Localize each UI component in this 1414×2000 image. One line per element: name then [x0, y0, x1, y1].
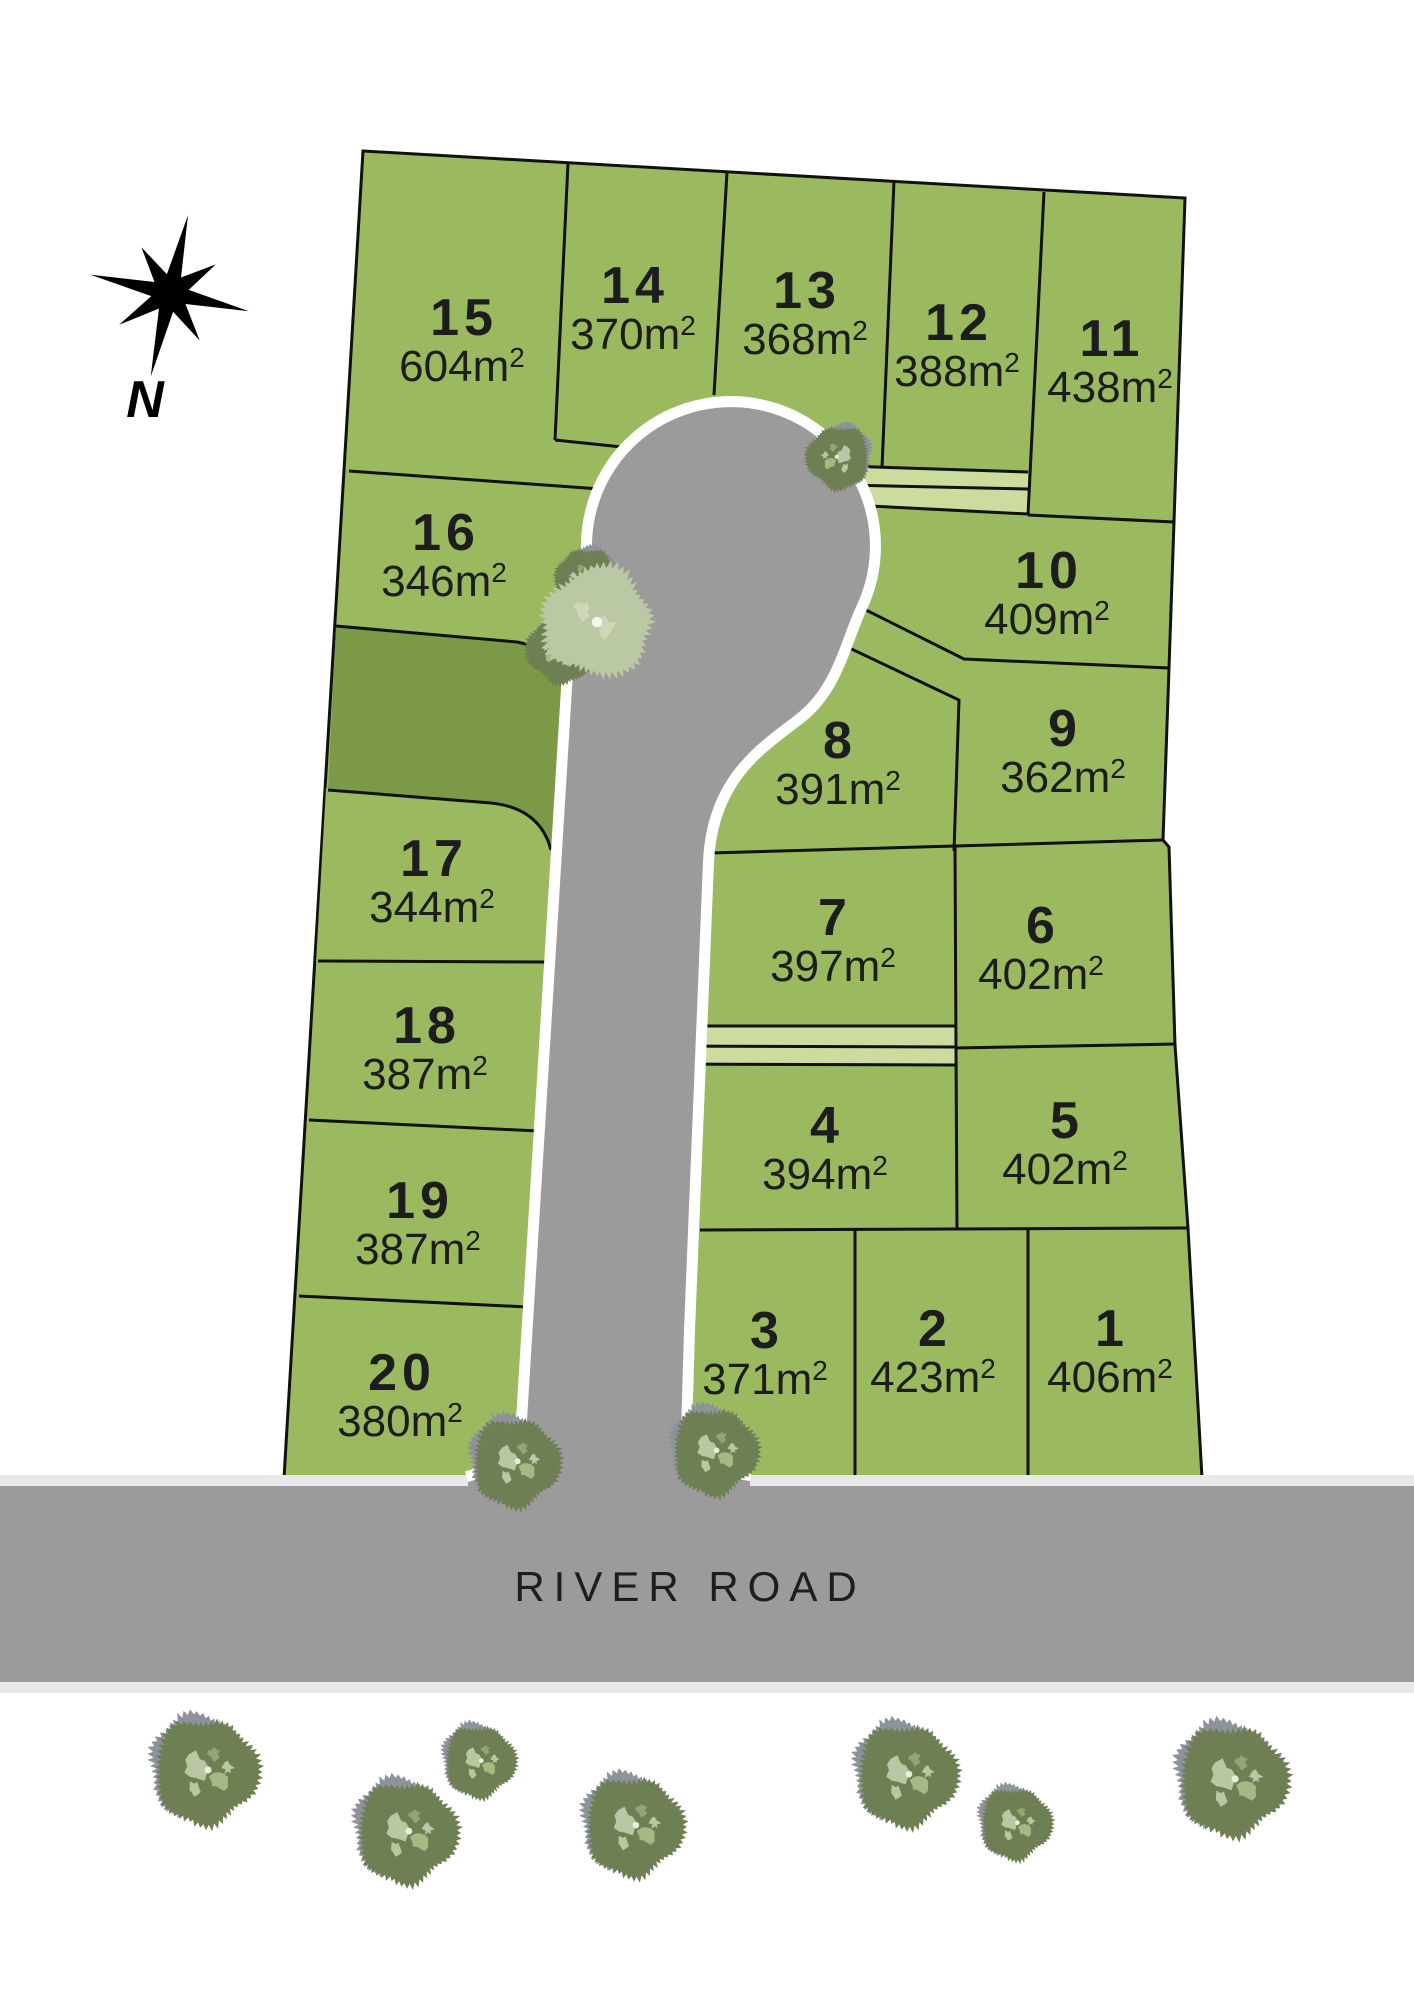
svg-text:N: N [126, 371, 165, 429]
svg-text:397m2: 397m2 [770, 942, 896, 991]
svg-text:438m2: 438m2 [1047, 363, 1173, 412]
svg-text:5: 5 [1050, 1092, 1084, 1150]
svg-text:388m2: 388m2 [894, 347, 1020, 396]
svg-text:346m2: 346m2 [381, 557, 507, 606]
svg-text:9: 9 [1048, 700, 1082, 758]
svg-text:370m2: 370m2 [570, 310, 696, 359]
svg-text:12: 12 [925, 294, 993, 352]
svg-text:RIVER ROAD: RIVER ROAD [514, 1563, 865, 1610]
svg-text:10: 10 [1015, 542, 1083, 600]
svg-text:387m2: 387m2 [355, 1225, 481, 1274]
svg-text:362m2: 362m2 [1000, 753, 1126, 802]
svg-text:14: 14 [601, 257, 669, 315]
svg-text:387m2: 387m2 [362, 1050, 488, 1099]
svg-text:6: 6 [1026, 897, 1060, 955]
svg-text:2: 2 [918, 1300, 952, 1358]
svg-text:20: 20 [368, 1344, 436, 1402]
svg-text:13: 13 [773, 262, 841, 320]
svg-text:15: 15 [430, 289, 498, 347]
svg-text:7: 7 [818, 889, 852, 947]
svg-text:371m2: 371m2 [702, 1355, 828, 1404]
svg-text:17: 17 [400, 830, 468, 888]
svg-text:402m2: 402m2 [1002, 1145, 1128, 1194]
svg-text:368m2: 368m2 [742, 315, 868, 364]
svg-text:344m2: 344m2 [369, 883, 495, 932]
svg-text:18: 18 [393, 997, 461, 1055]
svg-text:16: 16 [412, 504, 480, 562]
svg-text:409m2: 409m2 [984, 595, 1110, 644]
svg-text:391m2: 391m2 [775, 765, 901, 814]
svg-text:604m2: 604m2 [399, 342, 525, 391]
svg-text:406m2: 406m2 [1047, 1353, 1173, 1402]
svg-text:3: 3 [750, 1302, 784, 1360]
svg-text:394m2: 394m2 [762, 1150, 888, 1199]
svg-text:19: 19 [386, 1172, 454, 1230]
svg-text:11: 11 [1080, 310, 1145, 368]
svg-text:423m2: 423m2 [870, 1353, 996, 1402]
svg-text:402m2: 402m2 [978, 950, 1104, 999]
svg-text:4: 4 [810, 1097, 844, 1155]
svg-text:8: 8 [823, 712, 857, 770]
svg-text:1: 1 [1095, 1300, 1129, 1358]
svg-text:380m2: 380m2 [337, 1397, 463, 1446]
